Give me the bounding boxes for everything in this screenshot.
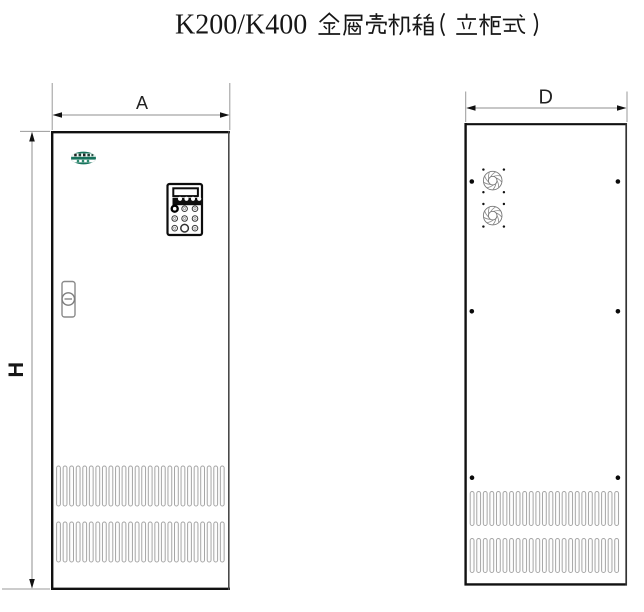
svg-text:H: H bbox=[4, 362, 28, 378]
svg-text:A: A bbox=[136, 93, 148, 113]
svg-text:K200/K400: K200/K400 bbox=[175, 10, 307, 41]
svg-text:D: D bbox=[539, 87, 553, 109]
